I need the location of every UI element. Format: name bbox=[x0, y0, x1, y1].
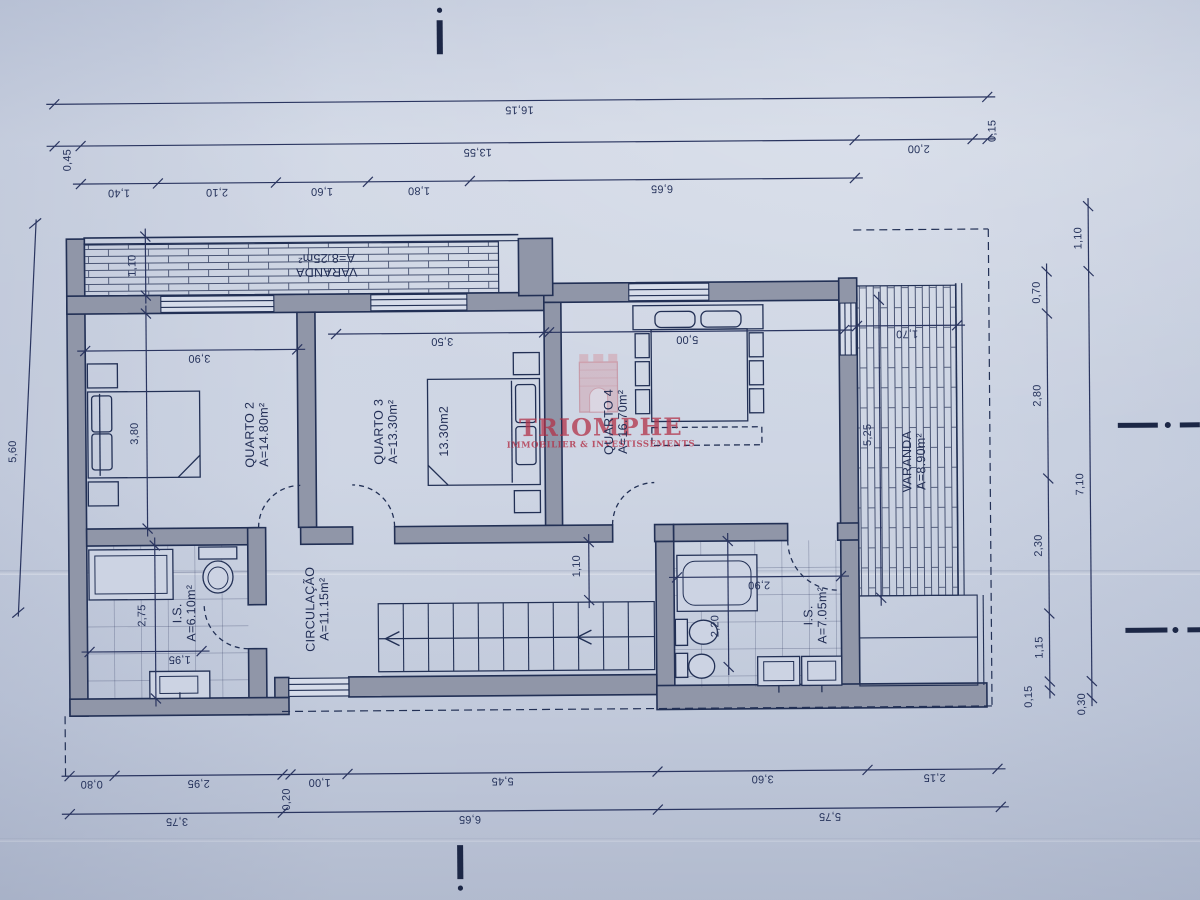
dim-bot-295: 2,95 bbox=[187, 777, 209, 789]
dim-varanda-right-width: 1,70 bbox=[896, 327, 918, 339]
dim-bot-360: 3,60 bbox=[751, 773, 773, 785]
dim-isr-width: 2,90 bbox=[748, 579, 770, 591]
dim-isl-width: 1,95 bbox=[168, 653, 190, 665]
dim-bot-100: 1,00 bbox=[308, 776, 330, 788]
room-area: A=8.90m² bbox=[914, 431, 928, 493]
fixtures-is-left bbox=[89, 547, 238, 699]
dim-top-1355: 13,55 bbox=[463, 146, 492, 158]
bathtub bbox=[677, 555, 757, 612]
rear-terrace bbox=[859, 595, 984, 686]
room-label-varanda-top: VARANDA A=8.25m² bbox=[296, 251, 358, 279]
right-mark-b bbox=[1125, 628, 1167, 633]
dim-bot-545: 5,45 bbox=[491, 775, 513, 787]
dim-right-015: 0,15 bbox=[1023, 685, 1035, 707]
window-stairwell bbox=[289, 678, 349, 696]
dim-isr-height: 2,20 bbox=[709, 615, 721, 637]
room-area: A=11.15m² bbox=[317, 567, 332, 652]
dim-bot-575: 5,75 bbox=[819, 810, 841, 822]
dim-q2-height: 3,80 bbox=[129, 422, 141, 444]
room-name: I.S. bbox=[170, 585, 184, 642]
plan-drawing: TRIOMPHE IMMOBILIER & INVESTISSEMENTS VA… bbox=[0, 0, 1200, 900]
plan-linework bbox=[0, 0, 1200, 900]
room-name: VARANDA bbox=[296, 265, 358, 279]
dim-bot-080: 0,80 bbox=[80, 778, 102, 790]
dim-isl-height: 2,75 bbox=[136, 604, 148, 626]
room-name: QUARTO 3 bbox=[372, 399, 387, 465]
room-name: I.S. bbox=[801, 587, 815, 644]
dim-varanda-depth: 1,10 bbox=[126, 255, 138, 277]
top-mark-dot bbox=[437, 8, 442, 13]
dim-left-560: 5,60 bbox=[7, 440, 19, 462]
room-label-circulacao: CIRCULAÇÃO A=11.15m² bbox=[303, 567, 332, 652]
staircase bbox=[378, 602, 655, 672]
bottom-mark-dot bbox=[458, 885, 463, 890]
dim-top-045: 0,45 bbox=[62, 149, 74, 171]
dim-left-line bbox=[9, 218, 44, 617]
dim-right-110: 1,10 bbox=[1072, 227, 1084, 249]
dim-right-115: 1,15 bbox=[1033, 636, 1045, 658]
window-quarto3 bbox=[371, 294, 467, 311]
top-mark-bar bbox=[437, 20, 443, 54]
dim-bot-215: 2,15 bbox=[923, 771, 945, 783]
bidet bbox=[676, 653, 715, 678]
dim-bot-375: 3,75 bbox=[166, 815, 188, 827]
room-area: A=13.30m² bbox=[386, 399, 401, 465]
room-name: CIRCULAÇÃO bbox=[303, 567, 318, 652]
room-label-varanda-right: VARANDA A=8.90m² bbox=[900, 431, 928, 493]
door-quarto2 bbox=[258, 485, 300, 527]
toilet bbox=[199, 547, 237, 593]
room-area: A=14.80m² bbox=[257, 402, 272, 468]
dim-right-070: 0,70 bbox=[1031, 281, 1043, 303]
dim-top-210: 2,10 bbox=[206, 186, 228, 198]
dim-top-total: 16,15 bbox=[505, 104, 534, 116]
room-label-quarto4: QUARTO 4 A=16.70m² bbox=[602, 389, 631, 455]
room-label-quarto3-bed-area: 13.30m2 bbox=[437, 406, 451, 457]
dim-top-200: 2,00 bbox=[907, 142, 929, 154]
dim-right-710: 7,10 bbox=[1074, 473, 1086, 495]
windows bbox=[161, 282, 859, 697]
room-label-is-left: I.S. A=6.10m² bbox=[170, 585, 198, 642]
dim-bot-020: 0,20 bbox=[281, 788, 293, 810]
dim-right-030: 0,30 bbox=[1076, 693, 1088, 715]
room-label-quarto2: QUARTO 2 A=14.80m² bbox=[243, 402, 272, 468]
room-name: QUARTO 2 bbox=[243, 402, 258, 468]
door-is-right bbox=[788, 540, 838, 590]
room-label-quarto3: QUARTO 3 A=13.30m² bbox=[372, 399, 401, 465]
dim-right-280: 2,80 bbox=[1031, 384, 1043, 406]
right-mark-a bbox=[1118, 423, 1158, 428]
room-name: QUARTO 4 bbox=[602, 389, 617, 455]
window-quarto2 bbox=[161, 296, 274, 313]
room-area: A=7.05m² bbox=[815, 587, 829, 644]
shower bbox=[89, 549, 173, 600]
window-quarto4 bbox=[629, 283, 709, 301]
dim-varanda-right-height: 5,25 bbox=[862, 424, 874, 446]
dim-q2-width: 3,90 bbox=[188, 352, 210, 364]
dim-top-015: 0,15 bbox=[986, 120, 998, 142]
dim-top-140: 1,40 bbox=[108, 187, 130, 199]
room-label-is-right: I.S. A=7.05m² bbox=[801, 587, 829, 644]
dim-right-230: 2,30 bbox=[1033, 534, 1045, 556]
room-area: A=8.25m² bbox=[296, 251, 358, 265]
dim-q4-width: 5,00 bbox=[676, 333, 698, 345]
dim-hall-width: 1,10 bbox=[571, 555, 583, 577]
bed-quarto2 bbox=[87, 363, 200, 506]
dim-q3-width: 3,50 bbox=[431, 335, 453, 347]
dim-top-665: 6,65 bbox=[651, 182, 673, 194]
dim-top-180: 1,80 bbox=[408, 184, 430, 196]
floorplan-photo: TRIOMPHE IMMOBILIER & INVESTISSEMENTS VA… bbox=[0, 0, 1200, 900]
door-quarto4 bbox=[612, 483, 654, 525]
door-quarto3 bbox=[352, 485, 394, 527]
room-area: A=16.70m² bbox=[616, 389, 631, 455]
room-area: A=6.10m² bbox=[184, 585, 198, 642]
dim-top-160: 1,60 bbox=[311, 185, 333, 197]
sink bbox=[150, 671, 210, 698]
bottom-mark-bar bbox=[457, 845, 463, 879]
door-is-left bbox=[204, 605, 248, 649]
dim-bot-665: 6,65 bbox=[459, 813, 481, 825]
room-name: VARANDA bbox=[900, 431, 914, 493]
